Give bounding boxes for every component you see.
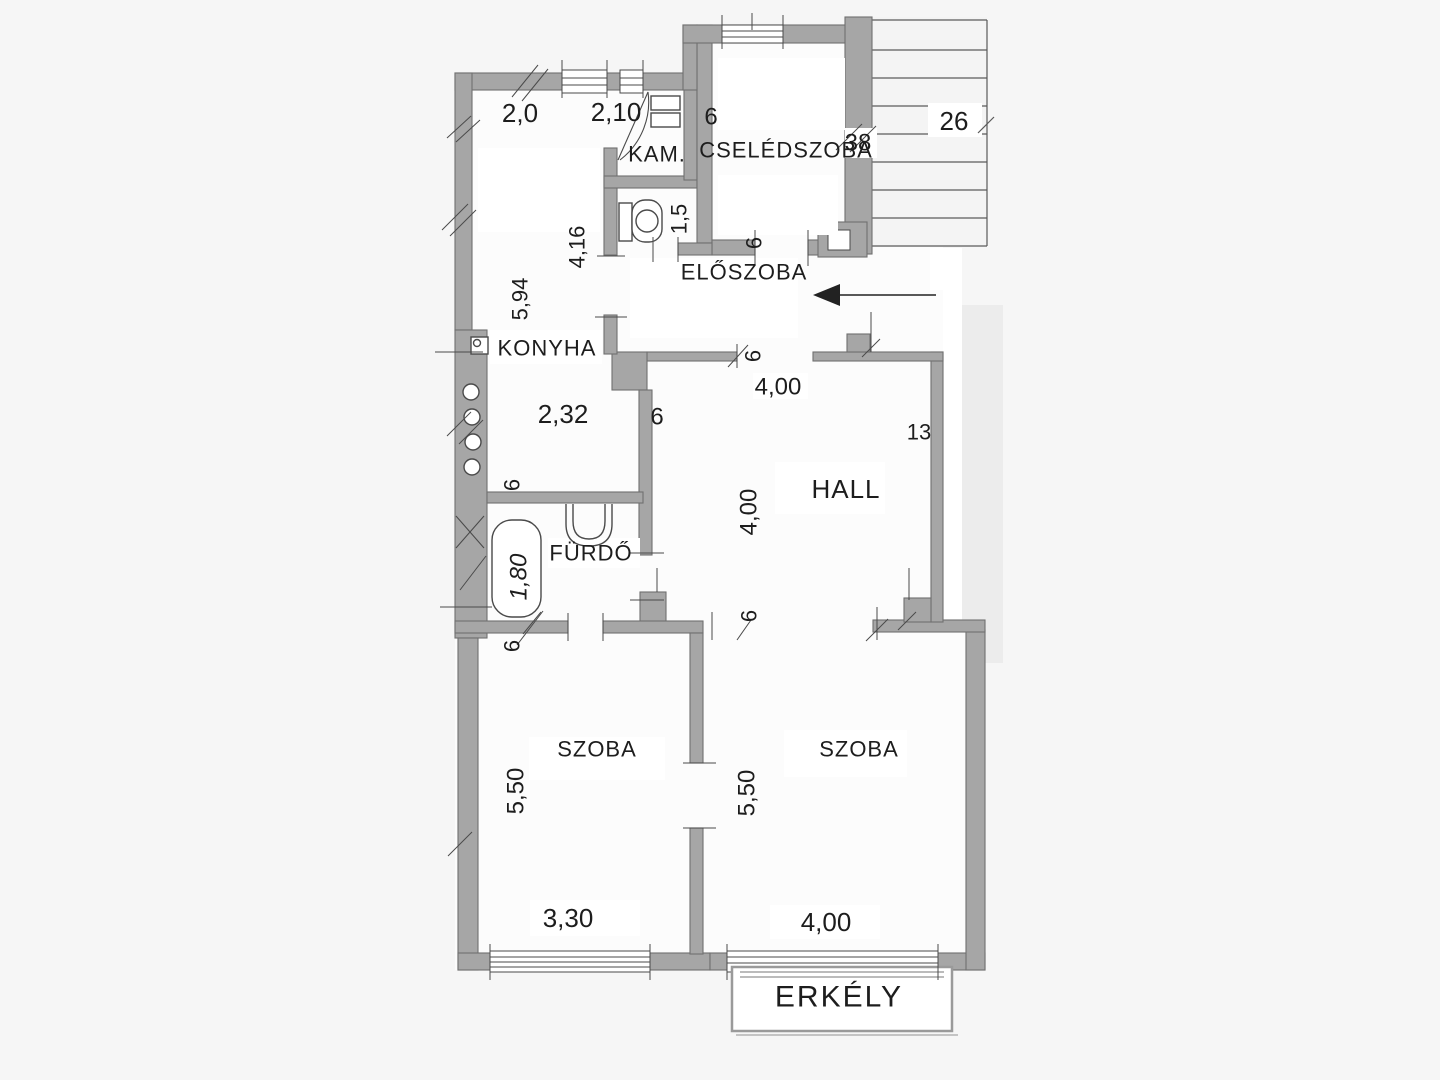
- room-label-szoba-left: SZOBA: [557, 737, 637, 762]
- dim-6-szoba-top: 6: [500, 640, 525, 652]
- dim-2-10: 2,10: [591, 97, 642, 127]
- room-label-hall: HALL: [811, 474, 880, 504]
- dim-6-hall-bottom: 6: [737, 610, 762, 622]
- room-label-kam: KAM.: [628, 142, 686, 167]
- dim-2-0: 2,0: [502, 98, 538, 128]
- dim-6-hall-top: 6: [741, 350, 766, 362]
- dim-6-furdo-top: 6: [500, 479, 525, 491]
- dim-1-5: 1,5: [667, 204, 692, 235]
- toilet-icon: [619, 200, 662, 242]
- dim-26: 26: [940, 106, 969, 136]
- room-label-eloszoba: ELŐSZOBA: [681, 260, 808, 285]
- room-label-konyha: KONYHA: [498, 336, 597, 361]
- room-label-furdo: FÜRDŐ: [549, 541, 632, 566]
- dim-5-94: 5,94: [508, 278, 533, 321]
- dim-4-00-szoba: 4,00: [801, 907, 852, 937]
- dim-6-konyha: 6: [650, 404, 663, 431]
- dim-6-eloszoba: 6: [742, 237, 767, 249]
- dim-4-00-hall-w: 4,00: [755, 374, 802, 401]
- dim-1-80-tub: 1,80: [506, 553, 533, 600]
- dim-38: 38: [845, 130, 872, 157]
- floor-plan-drawing: KAM. CSELÉDSZOBA ELŐSZOBA KONYHA HALL FÜ…: [0, 0, 1440, 1080]
- stove-icon: [471, 337, 488, 354]
- dim-4-16: 4,16: [565, 226, 590, 269]
- room-label-erkely: ERKÉLY: [775, 981, 903, 1014]
- floor-plan-canvas: KAM. CSELÉDSZOBA ELŐSZOBA KONYHA HALL FÜ…: [0, 0, 1440, 1080]
- dim-3-30: 3,30: [543, 903, 594, 933]
- dim-4-00-hall-h: 4,00: [736, 489, 763, 536]
- dim-5-50-right: 5,50: [734, 770, 761, 817]
- room-label-szoba-right: SZOBA: [819, 737, 899, 762]
- dim-13: 13: [907, 420, 931, 445]
- dim-5-50-left: 5,50: [503, 768, 530, 815]
- dim-2-32: 2,32: [538, 399, 589, 429]
- side-band: [962, 305, 1003, 663]
- dim-6-kam: 6: [704, 104, 717, 131]
